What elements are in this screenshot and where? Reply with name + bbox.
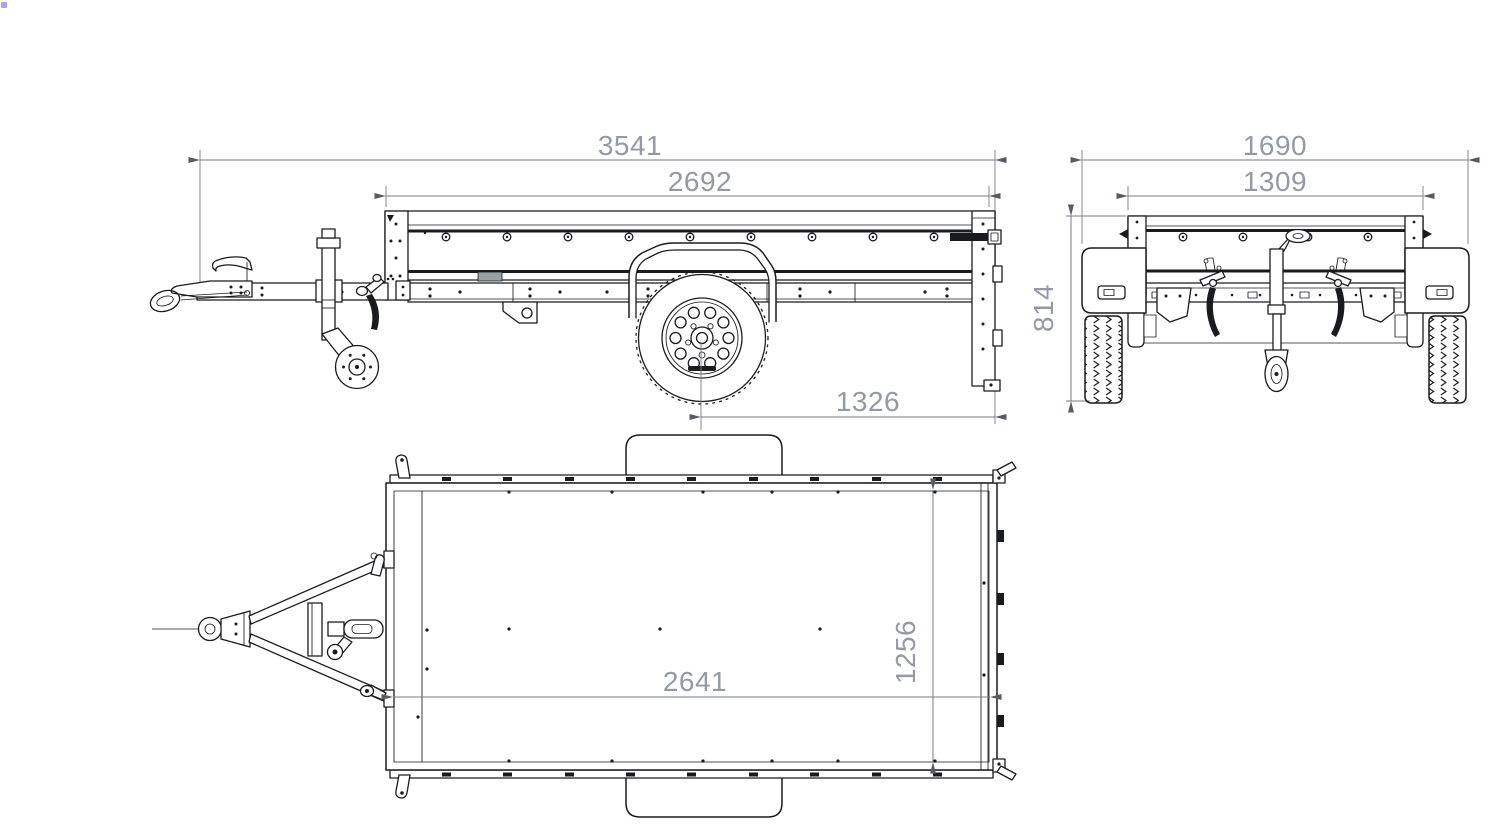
drawbar-latch-lower — [361, 685, 387, 700]
rear-mudguard-right — [1405, 248, 1469, 313]
tail-lamp-left — [1098, 286, 1125, 299]
drawing-canvas: 3541 2692 — [0, 0, 1500, 840]
rear-wheel-left — [1085, 316, 1122, 403]
dim-bed-length-value: 2641 — [663, 666, 727, 697]
dim-overall-width-value: 1690 — [1243, 130, 1307, 161]
hitch-coupler — [171, 281, 252, 297]
corner-latch-bottom-left — [396, 775, 410, 798]
front-post — [385, 211, 410, 300]
rear-wheel-right — [1429, 316, 1466, 403]
dim-overall-length-value: 3541 — [598, 130, 662, 161]
trailer-technical-drawing: 3541 2692 — [0, 0, 1500, 840]
tail-lamp-right — [1426, 286, 1453, 299]
dim-axle-to-rear-value: 1326 — [836, 386, 900, 417]
tailgate-hinges — [997, 530, 1004, 727]
drawbar-hitch — [148, 257, 395, 315]
support-plate-right — [1360, 288, 1394, 322]
top-mudguard-lower — [626, 778, 782, 817]
rear-mudguard-left — [1082, 248, 1146, 313]
corner-latch-bottom-right — [993, 759, 1016, 780]
support-plate-left — [1157, 288, 1191, 322]
dim-bed-width-value: 1256 — [890, 620, 921, 684]
corner-latch-top-right — [993, 462, 1016, 483]
dim-overall-height-value: 814 — [1028, 284, 1059, 332]
top-hitch — [199, 618, 222, 641]
top-jockey-assembly — [328, 620, 384, 660]
dim-box-length-value: 2692 — [668, 166, 732, 197]
dim-box-width-value: 1309 — [1243, 166, 1307, 197]
crank-handle — [1286, 230, 1310, 243]
coupler-handle — [213, 257, 252, 271]
top-view: 2641 1256 — [152, 435, 1016, 817]
dimension-box-width: 1309 — [1128, 166, 1423, 210]
top-bed — [386, 455, 1016, 798]
top-mudguard-upper — [626, 435, 782, 475]
top-drawbar — [152, 551, 394, 707]
corner-latch-top-left — [396, 455, 410, 478]
dimension-box-length: 2692 — [386, 166, 989, 207]
rear-view: 1690 1309 814 — [1028, 130, 1469, 403]
side-view: 3541 2692 — [148, 130, 1002, 430]
jockey-wheel-assembly — [316, 229, 379, 389]
drawbar-latch-upper — [371, 553, 384, 576]
